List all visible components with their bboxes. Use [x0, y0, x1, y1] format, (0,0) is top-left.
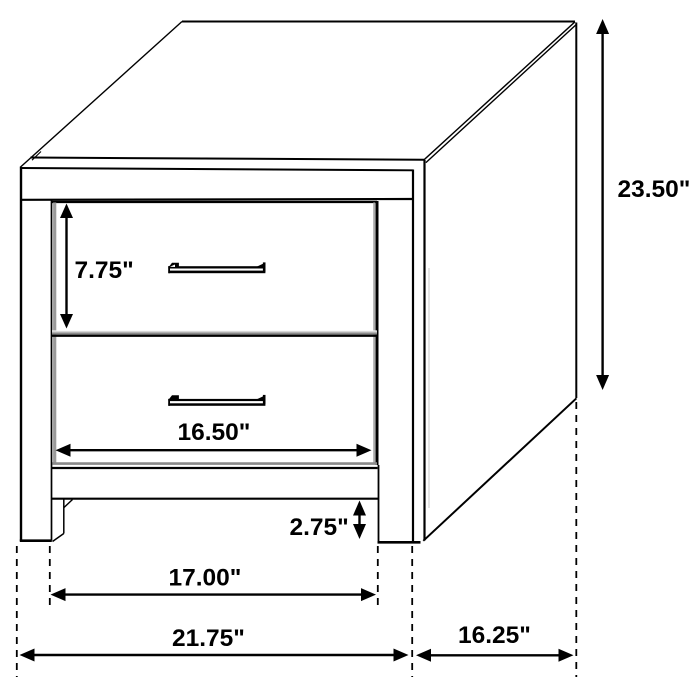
svg-text:21.75": 21.75": [172, 625, 245, 652]
svg-text:16.50": 16.50": [178, 419, 251, 446]
svg-text:17.00": 17.00": [169, 565, 242, 592]
svg-text:23.50": 23.50": [618, 176, 691, 203]
svg-text:16.25": 16.25": [458, 622, 531, 649]
svg-text:7.75": 7.75": [75, 257, 134, 284]
svg-text:2.75": 2.75": [290, 514, 349, 541]
